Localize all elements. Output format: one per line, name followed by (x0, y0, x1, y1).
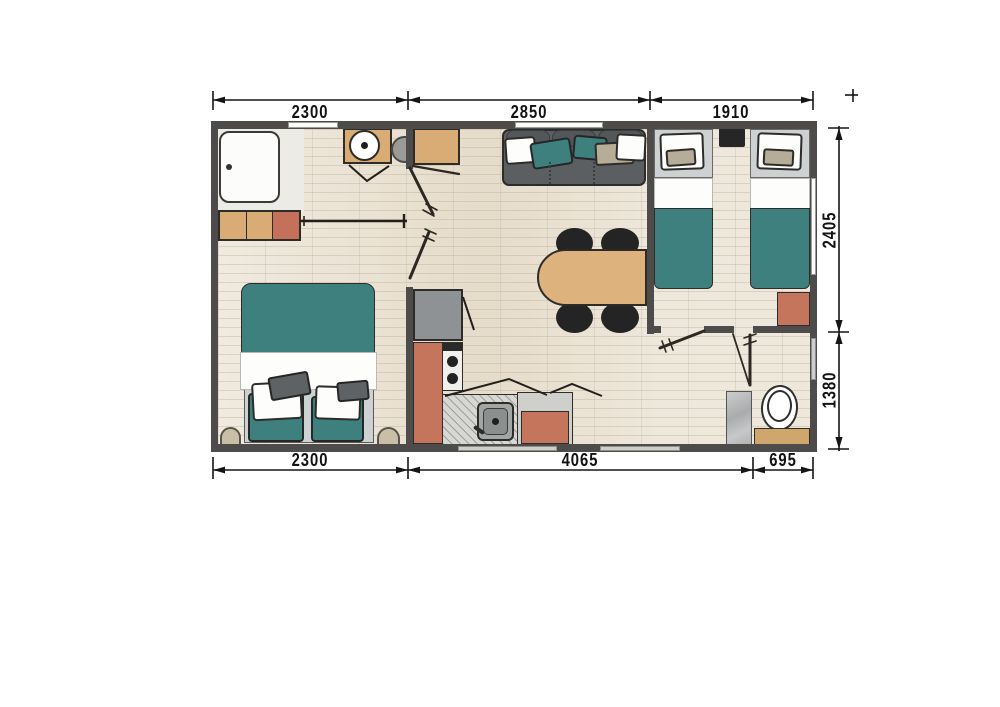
bedroom-cabinet-icon (777, 292, 810, 326)
chair-icon (556, 302, 593, 333)
wall-master-stub (406, 128, 413, 169)
bathroom-cabinet-icon (754, 428, 810, 445)
shower-drain-icon (226, 164, 232, 170)
sofa-seam (549, 162, 551, 184)
single-bed-sheet (654, 178, 713, 209)
kitchen-cabinet-icon (521, 411, 569, 444)
cushion-icon (336, 380, 370, 403)
burner-icon (447, 373, 458, 384)
cabinet-section (220, 212, 247, 239)
wardrobe-icon (413, 128, 460, 165)
wall-bathroom-right (753, 326, 811, 333)
burner-icon (447, 356, 458, 367)
sofa-seam (593, 162, 595, 184)
dim-label-bottom-2: 4065 (562, 450, 599, 471)
pouf-icon (220, 427, 241, 444)
nightstand-icon (719, 128, 745, 147)
window-icon (600, 446, 680, 451)
floor-plan-canvas: 2300 2850 1910 2300 4065 695 2405 1380 (0, 0, 1000, 707)
dining-table-icon (537, 249, 647, 306)
window-icon (811, 178, 816, 275)
dim-label-top-3: 1910 (713, 102, 750, 123)
wall-master-kitchen (406, 287, 413, 445)
single-bed-duvet (750, 208, 810, 289)
wall-bathroom-mid (704, 326, 734, 333)
basin-drain-icon (361, 142, 368, 149)
window-icon (811, 338, 816, 380)
pillow-icon (615, 133, 646, 162)
wall-right (810, 121, 817, 452)
wall-twin-bedroom (647, 128, 654, 334)
tall-cabinet-icon (413, 342, 443, 444)
shower-column-icon (726, 391, 752, 445)
stove-panel (443, 343, 462, 351)
wall-bathroom-stub (647, 326, 661, 333)
dim-label-bottom-1: 2300 (292, 450, 329, 471)
low-cabinet-icon (218, 210, 301, 241)
sink-drain-icon (492, 418, 499, 425)
dim-label-right-1: 2405 (820, 212, 841, 249)
cushion-icon (665, 148, 696, 167)
wall-left (211, 121, 218, 452)
dim-label-bottom-3: 695 (769, 450, 797, 471)
dim-label-top-1: 2300 (292, 102, 329, 123)
fridge-icon (413, 289, 463, 341)
double-bed-duvet (241, 283, 375, 354)
single-bed-duvet (654, 208, 713, 289)
window-icon (458, 446, 557, 451)
single-bed-sheet (750, 178, 810, 209)
cabinet-section (247, 212, 274, 239)
dim-label-top-2: 2850 (511, 102, 548, 123)
chair-icon (601, 302, 639, 333)
dim-label-right-2: 1380 (820, 372, 841, 409)
cabinet-section (273, 212, 299, 239)
pouf-icon (377, 427, 400, 444)
cushion-icon (763, 148, 795, 167)
